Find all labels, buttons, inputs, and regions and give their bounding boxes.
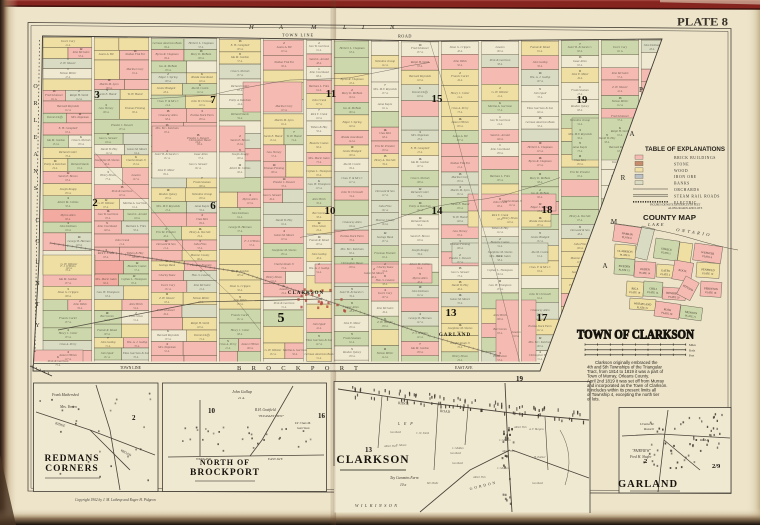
svg-text:Ralph H. Smith: Ralph H. Smith xyxy=(190,321,210,325)
svg-text:22 A.: 22 A. xyxy=(225,347,231,350)
svg-text:80 A.: 80 A. xyxy=(65,218,71,221)
svg-text:101 A.: 101 A. xyxy=(417,209,424,212)
svg-text:49 A.: 49 A. xyxy=(269,198,275,201)
svg-text:68 A.: 68 A. xyxy=(382,136,388,139)
svg-text:38 A.: 38 A. xyxy=(316,216,322,219)
svg-text:Lawton: Lawton xyxy=(510,330,521,334)
svg-text:Lawton: Lawton xyxy=(130,173,141,177)
svg-text:Richard Cotter: Richard Cotter xyxy=(230,84,250,88)
svg-text:BRICK BUILDINGS: BRICK BUILDINGS xyxy=(674,156,716,160)
svg-text:Chas A. Perry: Chas A. Perry xyxy=(59,342,77,346)
svg-text:Ida M. Gordon: Ida M. Gordon xyxy=(46,138,65,142)
svg-text:76 A.: 76 A. xyxy=(457,346,463,349)
svg-text:James O'Brien: James O'Brien xyxy=(241,342,259,346)
svg-text:107 A.: 107 A. xyxy=(457,139,464,142)
svg-text:104 A.: 104 A. xyxy=(349,96,356,99)
svg-text:28 A.: 28 A. xyxy=(163,91,169,94)
svg-text:108 A.: 108 A. xyxy=(417,181,424,184)
svg-text:Jacob E. Hamil: Jacob E. Hamil xyxy=(451,202,470,206)
svg-text:148 A.: 148 A. xyxy=(457,220,464,223)
svg-text:Myron Allen: Myron Allen xyxy=(412,276,428,280)
svg-text:86 A.: 86 A. xyxy=(197,258,203,261)
svg-text:148 A.: 148 A. xyxy=(104,229,111,232)
svg-text:53 A.: 53 A. xyxy=(78,55,84,58)
svg-text:129 A.: 129 A. xyxy=(199,104,206,107)
svg-text:Miles: Miles xyxy=(689,343,697,347)
svg-text:Geo. H. Thompson: Geo. H. Thompson xyxy=(489,283,512,287)
svg-text:105 A.: 105 A. xyxy=(237,274,244,277)
svg-text:160 A.: 160 A. xyxy=(497,50,504,53)
svg-text:Isaac Allen: Isaac Allen xyxy=(572,59,587,63)
svg-text:157 A.: 157 A. xyxy=(417,51,424,54)
svg-text:CORNERS: CORNERS xyxy=(45,464,98,474)
svg-text:156 A.: 156 A. xyxy=(457,125,464,128)
svg-text:Valentine Jessup: Valentine Jessup xyxy=(192,192,212,196)
svg-text:61 A.: 61 A. xyxy=(132,206,138,209)
svg-text:95 A.: 95 A. xyxy=(577,175,583,178)
svg-text:John Crank: John Crank xyxy=(312,98,327,102)
svg-text:24 A.: 24 A. xyxy=(497,123,503,126)
svg-text:Nathan Fisk Est: Nathan Fisk Est xyxy=(273,60,293,64)
svg-text:Josephine M. Shores: Josephine M. Shores xyxy=(488,250,514,254)
svg-text:125 A.: 125 A. xyxy=(537,150,544,153)
svg-text:159 A.: 159 A. xyxy=(382,149,389,152)
svg-text:48 A.: 48 A. xyxy=(577,233,583,236)
svg-text:Dean G. Crippen: Dean G. Crippen xyxy=(449,45,471,49)
svg-text:Monroe County: Monroe County xyxy=(375,218,395,222)
svg-text:60 A.: 60 A. xyxy=(349,252,355,255)
svg-text:Nelson Miller: Nelson Miller xyxy=(59,71,77,75)
svg-text:118 A.: 118 A. xyxy=(134,217,141,220)
svg-text:Ralph H. Smith: Ralph H. Smith xyxy=(69,93,89,97)
svg-text:Wilson & Hoy: Wilson & Hoy xyxy=(127,251,145,255)
svg-text:STEAM RAIL ROADS: STEAM RAIL ROADS xyxy=(674,194,720,198)
svg-text:Mrs Halls: Mrs Halls xyxy=(426,482,438,485)
svg-text:A. F. Burgess: A. F. Burgess xyxy=(528,428,544,431)
svg-text:GARLAND: GARLAND xyxy=(439,333,471,338)
svg-text:ALONG ROADS AND LOTS: ALONG ROADS AND LOTS xyxy=(668,207,703,210)
svg-text:83 A.: 83 A. xyxy=(237,89,243,92)
svg-text:F. J. O'Brien: F. J. O'Brien xyxy=(243,239,260,243)
svg-text:R: R xyxy=(33,101,37,107)
svg-text:Jacob E. Hamil: Jacob E. Hamil xyxy=(264,134,283,138)
svg-text:151 A.: 151 A. xyxy=(164,157,171,160)
svg-text:Geo Reed: Geo Reed xyxy=(450,452,462,455)
svg-text:Laura A. Bll: Laura A. Bll xyxy=(276,45,292,49)
svg-text:Albert Fish: Albert Fish xyxy=(501,450,515,453)
svg-text:31 A.: 31 A. xyxy=(281,306,287,309)
svg-text:106 A.: 106 A. xyxy=(271,171,278,174)
svg-text:14: 14 xyxy=(432,205,444,217)
svg-text:David W. Hoy: David W. Hoy xyxy=(275,218,293,222)
svg-text:101 A.: 101 A. xyxy=(382,209,389,212)
svg-text:German American Bank: German American Bank xyxy=(525,120,555,124)
svg-text:Charles Knab Jr: Charles Knab Jr xyxy=(274,262,295,266)
svg-text:57 A.: 57 A. xyxy=(271,155,277,158)
svg-text:Anna Kayes: Anna Kayes xyxy=(377,102,393,106)
svg-text:WILKINSON: WILKINSON xyxy=(355,503,400,508)
svg-text:24 A.: 24 A. xyxy=(457,96,463,99)
svg-text:L E P: L E P xyxy=(397,422,414,426)
svg-text:140 A.: 140 A. xyxy=(104,319,111,322)
svg-text:100 A.: 100 A. xyxy=(165,80,172,83)
svg-text:U: U xyxy=(35,260,40,266)
svg-text:39 A.: 39 A. xyxy=(382,163,388,166)
svg-text:Martin M. Lynn: Martin M. Lynn xyxy=(99,82,119,86)
svg-text:6: 6 xyxy=(210,200,216,212)
svg-text:Geo. Yurney: Geo. Yurney xyxy=(267,150,282,154)
svg-text:John McGuire: John McGuire xyxy=(611,71,629,75)
svg-text:73 A.: 73 A. xyxy=(457,275,463,278)
svg-text:Mrs. M.V. Reynolds: Mrs. M.V. Reynolds xyxy=(372,87,397,91)
svg-text:Jennie Blodgett: Jennie Blodgett xyxy=(531,235,550,239)
svg-text:John McGuire: John McGuire xyxy=(193,283,211,287)
svg-text:Z. H. Weaver: Z. H. Weaver xyxy=(159,296,176,300)
svg-text:N: N xyxy=(389,24,395,31)
svg-text:72 A.: 72 A. xyxy=(281,267,287,270)
svg-text:Chas S. Nichols: Chas S. Nichols xyxy=(230,69,250,73)
svg-text:Chauncey Allen: Chauncey Allen xyxy=(158,113,178,117)
svg-text:13: 13 xyxy=(446,307,458,319)
svg-text:Barnard Reynolds: Barnard Reynolds xyxy=(157,333,180,337)
svg-text:34 A.: 34 A. xyxy=(497,245,503,248)
svg-text:129 A.: 129 A. xyxy=(507,221,514,224)
svg-text:Dennis Duffy: Dennis Duffy xyxy=(46,115,64,119)
svg-text:H. Palmer: H. Palmer xyxy=(533,456,547,459)
svg-text:Richard Cotter: Richard Cotter xyxy=(58,150,78,154)
svg-text:147 A.: 147 A. xyxy=(316,343,323,346)
svg-text:105 A.: 105 A. xyxy=(497,179,504,182)
svg-text:BROCKPORT: BROCKPORT xyxy=(237,365,368,372)
svg-text:19: 19 xyxy=(516,375,524,383)
svg-text:76 A.: 76 A. xyxy=(134,345,140,348)
svg-text:2/9: 2/9 xyxy=(712,463,721,470)
svg-text:33 A.: 33 A. xyxy=(537,96,543,99)
svg-text:107 A.: 107 A. xyxy=(537,80,544,83)
svg-text:160 A.: 160 A. xyxy=(537,345,544,348)
svg-text:63 A.: 63 A. xyxy=(105,295,111,298)
svg-text:Martha Crary: Martha Crary xyxy=(275,104,294,108)
svg-text:John E. Miner: John E. Miner xyxy=(343,321,361,325)
svg-text:144 A.: 144 A. xyxy=(382,356,389,359)
svg-text:110 A.: 110 A. xyxy=(513,335,520,338)
svg-text:41 A.: 41 A. xyxy=(65,44,71,47)
svg-text:Julia Files: Julia Files xyxy=(574,242,588,246)
svg-text:Mrs. B.C. Ketchum: Mrs. B.C. Ketchum xyxy=(339,247,364,251)
svg-text:159 A.: 159 A. xyxy=(577,163,584,166)
svg-text:E. H. Campbell: E. H. Campbell xyxy=(230,43,250,47)
svg-text:Rods: Rods xyxy=(689,348,696,352)
svg-text:Joseph Knapp: Joseph Knapp xyxy=(59,187,77,191)
svg-text:Richard Slavin: Richard Slavin xyxy=(230,112,249,116)
svg-text:42 A.: 42 A. xyxy=(316,327,322,330)
svg-text:Joseph Knapp: Joseph Knapp xyxy=(411,248,429,252)
svg-text:GARLAND: GARLAND xyxy=(618,479,678,490)
svg-text:48 A.: 48 A. xyxy=(316,62,322,65)
svg-text:John Dettman: John Dettman xyxy=(232,211,249,215)
svg-text:31 A.: 31 A. xyxy=(316,357,322,360)
svg-text:Elias Garrison & Son: Elias Garrison & Son xyxy=(526,106,554,110)
svg-text:Rick T. Crank: Rick T. Crank xyxy=(310,112,328,116)
svg-text:21 A.: 21 A. xyxy=(238,396,245,400)
svg-text:104 A.: 104 A. xyxy=(382,223,389,226)
svg-text:134 A.: 134 A. xyxy=(53,143,60,146)
svg-text:126 A.: 126 A. xyxy=(199,80,206,83)
svg-text:22 A.: 22 A. xyxy=(457,166,463,169)
svg-text:96 A.: 96 A. xyxy=(237,171,243,174)
svg-text:57 A.: 57 A. xyxy=(237,60,243,63)
svg-text:104 A.: 104 A. xyxy=(497,273,504,276)
svg-text:Albert Fish: Albert Fish xyxy=(472,476,486,479)
svg-text:20 A.: 20 A. xyxy=(349,82,355,85)
svg-text:Mary D. McBain: Mary D. McBain xyxy=(529,176,551,180)
svg-text:E. H. Campbell: E. H. Campbell xyxy=(58,126,78,130)
svg-text:112 A.: 112 A. xyxy=(509,204,516,207)
svg-text:Sarah L. Arnold: Sarah L. Arnold xyxy=(490,133,510,137)
svg-text:Blanche Coates: Blanche Coates xyxy=(310,141,330,145)
svg-text:136 A.: 136 A. xyxy=(281,253,288,256)
svg-text:137 A.: 137 A. xyxy=(237,74,244,77)
svg-text:135 A.: 135 A. xyxy=(537,224,544,227)
svg-text:92 A.: 92 A. xyxy=(271,280,277,283)
svg-text:66 A.: 66 A. xyxy=(316,146,322,149)
svg-text:108 A.: 108 A. xyxy=(65,295,72,298)
svg-text:39 A.: 39 A. xyxy=(77,307,83,310)
svg-text:120 A.: 120 A. xyxy=(417,95,424,98)
svg-text:Francis Carter: Francis Carter xyxy=(58,316,78,320)
svg-text:77 A.: 77 A. xyxy=(105,178,111,181)
svg-text:39 A.: 39 A. xyxy=(417,253,423,256)
svg-text:83 A.: 83 A. xyxy=(103,256,109,259)
svg-text:106 A.: 106 A. xyxy=(577,247,584,250)
svg-text:W. H. Hamil: W. H. Hamil xyxy=(128,92,143,96)
svg-text:160 A.: 160 A. xyxy=(349,111,356,114)
svg-text:97 A.: 97 A. xyxy=(103,206,109,209)
svg-text:108 A.: 108 A. xyxy=(497,318,504,321)
svg-text:Charles Knab Jr: Charles Knab Jr xyxy=(450,341,471,345)
svg-text:99 A.: 99 A. xyxy=(164,46,170,49)
svg-text:95 A.: 95 A. xyxy=(316,174,322,177)
svg-text:James M. Moore: James M. Moore xyxy=(127,147,148,151)
svg-text:WOOD: WOOD xyxy=(674,169,688,173)
svg-text:146 A.: 146 A. xyxy=(497,138,504,141)
svg-text:C: C xyxy=(35,218,39,224)
svg-text:Ida M. Cusick: Ida M. Cusick xyxy=(343,162,362,166)
svg-text:123 A.: 123 A. xyxy=(247,202,254,205)
svg-text:105 A.: 105 A. xyxy=(237,48,244,51)
svg-text:146 A.: 146 A. xyxy=(66,267,73,270)
svg-text:72 A.: 72 A. xyxy=(105,345,111,348)
svg-text:George B. Harman: George B. Harman xyxy=(229,225,252,229)
svg-text:Eureka Stock Farm: Eureka Stock Farm xyxy=(339,234,364,238)
svg-text:50 A.: 50 A. xyxy=(316,130,322,133)
svg-text:N: N xyxy=(35,281,40,287)
svg-text:40 A.: 40 A. xyxy=(417,281,423,284)
svg-text:35 A.: 35 A. xyxy=(457,302,463,305)
svg-text:Josephine M. Shores: Josephine M. Shores xyxy=(95,158,121,162)
svg-text:111 A.: 111 A. xyxy=(51,98,58,101)
svg-text:114 A.: 114 A. xyxy=(76,98,83,101)
svg-text:C. W. Smith: C. W. Smith xyxy=(416,432,430,435)
svg-text:138 A.: 138 A. xyxy=(497,152,504,155)
svg-text:J. Glidden: J. Glidden xyxy=(452,447,464,450)
svg-text:R.H. Gratfield: R.H. Gratfield xyxy=(254,408,276,412)
svg-text:31 A.: 31 A. xyxy=(133,319,139,322)
svg-text:Ida M. Cusick: Ida M. Cusick xyxy=(531,250,550,254)
svg-text:Jas. R. McBain: Jas. R. McBain xyxy=(343,106,362,110)
svg-text:81 A.: 81 A. xyxy=(132,72,138,75)
svg-text:37 A.: 37 A. xyxy=(198,157,204,160)
svg-text:137 A.: 137 A. xyxy=(65,321,72,324)
svg-text:German American Bank: German American Bank xyxy=(304,352,334,356)
svg-text:49 A.: 49 A. xyxy=(577,77,583,80)
svg-text:54 A.: 54 A. xyxy=(316,271,322,274)
svg-text:Myron Allen: Myron Allen xyxy=(60,213,76,217)
svg-text:Wm. A. J. Gallup: Wm. A. J. Gallup xyxy=(309,266,330,270)
svg-text:ROAD: ROAD xyxy=(700,438,710,442)
svg-text:120 A.: 120 A. xyxy=(76,244,83,247)
svg-text:122 A.: 122 A. xyxy=(106,152,113,155)
svg-text:99 A.: 99 A. xyxy=(199,222,205,225)
svg-text:Fred Schlosser: Fred Schlosser xyxy=(610,114,630,118)
svg-text:135 A.: 135 A. xyxy=(497,288,504,291)
svg-text:127 A.: 127 A. xyxy=(349,181,356,184)
svg-text:E. Moore: E. Moore xyxy=(395,444,407,447)
svg-text:Wm. A. J. Gallup: Wm. A. J. Gallup xyxy=(127,340,148,344)
svg-text:82 A.: 82 A. xyxy=(281,123,287,126)
svg-text:127 A.: 127 A. xyxy=(382,194,389,197)
svg-text:Mrs. M.V. Reynolds: Mrs. M.V. Reynolds xyxy=(155,204,180,208)
svg-text:Barbara L. Files: Barbara L. Files xyxy=(490,174,511,178)
svg-text:155 A.: 155 A. xyxy=(65,336,72,339)
svg-text:IRON ORE: IRON ORE xyxy=(674,175,697,179)
svg-text:3: 3 xyxy=(94,89,100,101)
svg-text:111 A.: 111 A. xyxy=(617,50,624,53)
svg-text:Geo Reed: Geo Reed xyxy=(532,482,544,485)
svg-text:A: A xyxy=(278,24,283,31)
svg-text:22 A.: 22 A. xyxy=(199,288,205,291)
svg-text:Wilson & Hoy: Wilson & Hoy xyxy=(311,125,329,129)
svg-text:95 A.: 95 A. xyxy=(131,282,137,285)
svg-text:Herbert L. Chapman: Herbert L. Chapman xyxy=(338,46,365,50)
svg-text:99 A.: 99 A. xyxy=(163,173,169,176)
svg-text:John Spall: John Spall xyxy=(534,91,547,95)
svg-text:Fannie R. Mead: Fannie R. Mead xyxy=(529,45,550,49)
svg-text:140 A.: 140 A. xyxy=(132,256,139,259)
svg-text:81 A.: 81 A. xyxy=(537,50,543,53)
svg-text:59 A.: 59 A. xyxy=(199,209,205,212)
svg-text:25 A.: 25 A. xyxy=(417,151,423,154)
svg-text:Peck & Garrison: Peck & Garrison xyxy=(47,359,69,363)
svg-text:Sarah L. Arnold: Sarah L. Arnold xyxy=(309,57,329,61)
svg-text:George B. Harman: George B. Harman xyxy=(68,239,91,243)
svg-text:EAST AVE: EAST AVE xyxy=(268,457,283,461)
svg-text:A: A xyxy=(33,152,38,158)
svg-text:62 A.: 62 A. xyxy=(198,301,204,304)
svg-text:146 A.: 146 A. xyxy=(537,111,544,114)
svg-text:138 A.: 138 A. xyxy=(417,351,424,354)
svg-text:Isaac Allen: Isaac Allen xyxy=(193,152,208,156)
svg-text:49 A.: 49 A. xyxy=(457,79,463,82)
svg-text:160 A.: 160 A. xyxy=(247,347,254,350)
svg-text:Ralph H. Smith: Ralph H. Smith xyxy=(410,60,430,64)
svg-text:Henry Nixon: Henry Nixon xyxy=(451,354,468,358)
svg-text:of lots.: of lots. xyxy=(587,397,600,402)
svg-text:TOWN OF CLARKSON: TOWN OF CLARKSON xyxy=(577,328,694,342)
svg-text:John W. Chriswell: John W. Chriswell xyxy=(341,190,363,194)
svg-text:David W. Hoy: David W. Hoy xyxy=(100,147,118,151)
svg-text:Anna Kayes: Anna Kayes xyxy=(572,145,588,149)
svg-text:122 A.: 122 A. xyxy=(197,91,204,94)
svg-text:113 A.: 113 A. xyxy=(281,238,288,241)
svg-text:50 A.: 50 A. xyxy=(537,125,543,128)
svg-text:136 A.: 136 A. xyxy=(199,118,206,121)
svg-text:Chas. F. & Mrs C: Chas. F. & Mrs C xyxy=(341,176,363,180)
svg-text:John Spall: John Spall xyxy=(313,322,326,326)
svg-text:Jacob E. Hamil: Jacob E. Hamil xyxy=(98,92,117,96)
svg-text:158 A.: 158 A. xyxy=(349,355,356,358)
svg-text:56 A.: 56 A. xyxy=(292,353,298,356)
svg-text:A: A xyxy=(629,130,634,138)
svg-text:153 A.: 153 A. xyxy=(165,338,172,341)
svg-text:65 A.: 65 A. xyxy=(417,65,423,68)
svg-text:93 A.: 93 A. xyxy=(164,301,170,304)
svg-text:Albert M. Collins: Albert M. Collins xyxy=(409,262,432,266)
svg-text:Mrs. M.V. Reynolds: Mrs. M.V. Reynolds xyxy=(567,132,592,136)
svg-text:W. H. Hamil: W. H. Hamil xyxy=(453,215,468,219)
svg-text:29 A.: 29 A. xyxy=(197,235,203,238)
svg-text:Valentine Jessup: Valentine Jessup xyxy=(570,118,590,122)
svg-text:144 A.: 144 A. xyxy=(349,140,356,143)
svg-text:G. H. Webster: G. H. Webster xyxy=(492,90,510,94)
svg-text:Laura A. Bll: Laura A. Bll xyxy=(452,134,468,138)
svg-text:2: 2 xyxy=(644,458,647,465)
svg-text:49 A.: 49 A. xyxy=(382,311,388,314)
svg-text:REDMANS: REDMANS xyxy=(44,454,99,464)
svg-text:Isaac Allen: Isaac Allen xyxy=(344,305,359,309)
svg-text:Garrison: Garrison xyxy=(297,426,310,430)
svg-text:Z. H. Weaver: Z. H. Weaver xyxy=(612,85,629,89)
svg-text:Eureka Stock Farm: Eureka Stock Farm xyxy=(189,113,214,117)
svg-text:60 A.: 60 A. xyxy=(577,50,583,53)
svg-text:113 A.: 113 A. xyxy=(281,109,288,112)
svg-text:98 A.: 98 A. xyxy=(537,181,543,184)
svg-text:Dennis Duffy: Dennis Duffy xyxy=(193,333,211,337)
svg-text:Tay Cummins Farm: Tay Cummins Farm xyxy=(390,476,419,480)
svg-text:Geo G. Stewart: Geo G. Stewart xyxy=(99,136,118,140)
svg-text:93 A.: 93 A. xyxy=(65,179,71,182)
svg-text:65 A.: 65 A. xyxy=(65,131,71,134)
svg-text:Sarah E. Brown: Sarah E. Brown xyxy=(230,138,250,142)
svg-text:Savings Bank: Savings Bank xyxy=(159,263,176,267)
svg-text:Byron R. Chapman: Byron R. Chapman xyxy=(156,52,179,56)
svg-text:85 A.: 85 A. xyxy=(105,217,111,220)
svg-text:28 A.: 28 A. xyxy=(349,310,355,313)
svg-text:30 A.: 30 A. xyxy=(537,65,543,68)
svg-text:18: 18 xyxy=(542,204,554,216)
svg-text:5: 5 xyxy=(278,311,285,326)
svg-text:125 A.: 125 A. xyxy=(316,187,323,190)
svg-text:127 A.: 127 A. xyxy=(316,103,323,106)
svg-text:Barnard Reynolds: Barnard Reynolds xyxy=(57,104,80,108)
svg-text:39 A.: 39 A. xyxy=(349,295,355,298)
svg-text:Chauncey Allen: Chauncey Allen xyxy=(342,220,362,224)
svg-text:Geo G. Stewart: Geo G. Stewart xyxy=(263,193,282,197)
svg-text:40 A.: 40 A. xyxy=(316,257,322,260)
svg-text:85 A.: 85 A. xyxy=(164,131,170,134)
svg-text:Frank Seaman: Frank Seaman xyxy=(342,336,361,340)
svg-text:LAKE: LAKE xyxy=(647,222,665,227)
